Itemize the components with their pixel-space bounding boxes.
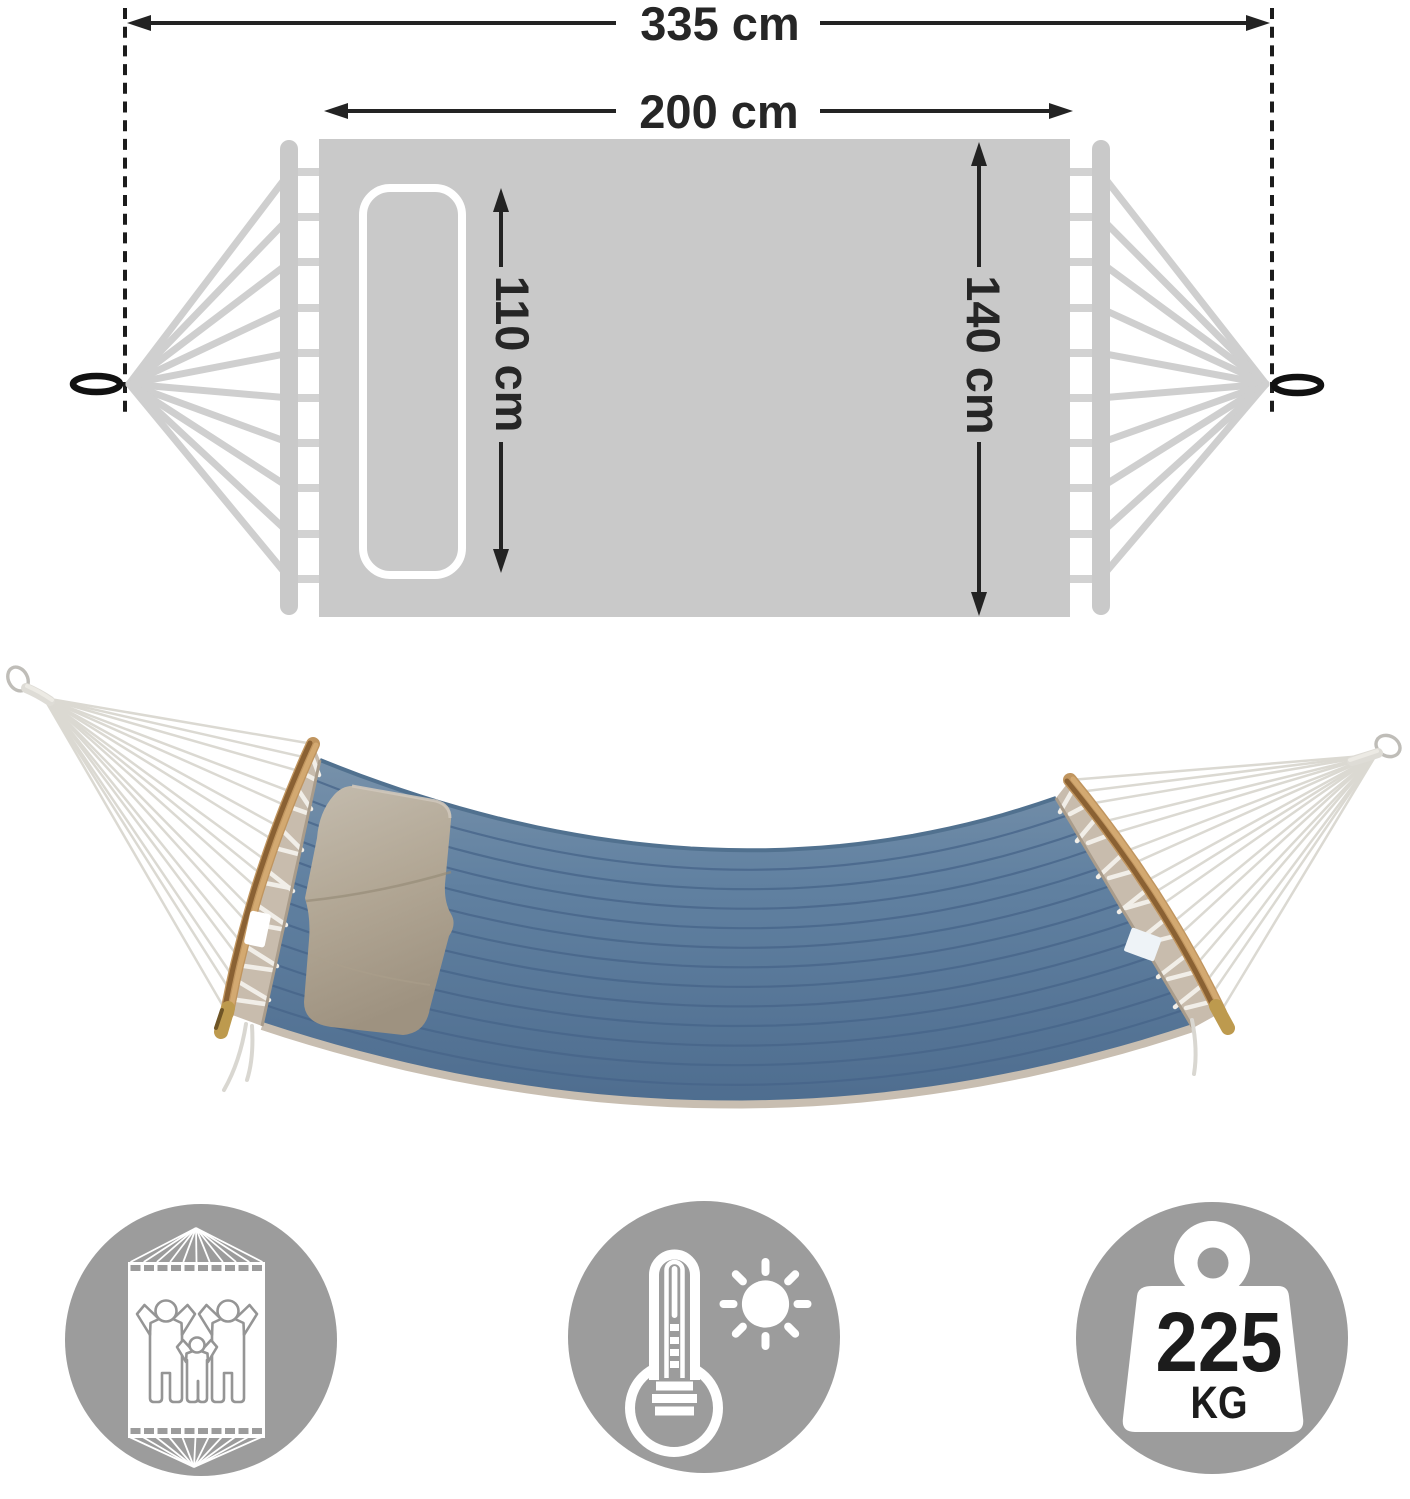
svg-text:140 cm: 140 cm xyxy=(957,275,1010,434)
svg-text:225: 225 xyxy=(1156,1295,1283,1389)
svg-text:KG: KG xyxy=(1191,1377,1248,1428)
svg-text:335 cm: 335 cm xyxy=(640,0,799,50)
svg-text:200 cm: 200 cm xyxy=(639,85,798,138)
svg-text:110 cm: 110 cm xyxy=(486,276,539,433)
